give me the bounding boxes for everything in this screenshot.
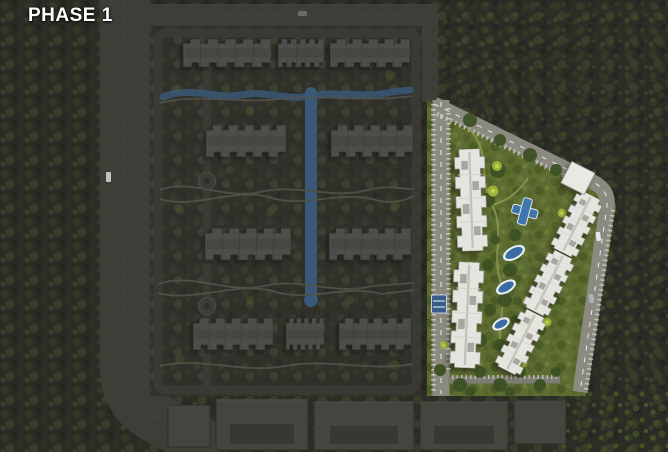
masterplan-render: PHASE 1	[0, 0, 668, 452]
building-cluster	[286, 318, 324, 350]
building-cluster	[193, 318, 273, 350]
building-cluster	[339, 318, 411, 350]
car-on-boulevard	[106, 172, 111, 182]
building-cluster	[329, 228, 411, 260]
entrance-gate	[432, 295, 447, 313]
building-cluster	[330, 39, 410, 67]
white-building	[450, 261, 485, 368]
forest-bottomright	[556, 388, 668, 452]
dimmed-compound	[150, 26, 422, 396]
building-cluster	[278, 39, 324, 67]
commercial-strip-dimmed	[168, 400, 566, 450]
car-on-north-road	[298, 11, 307, 16]
building-cluster	[331, 125, 413, 157]
aerial-scene	[0, 0, 668, 452]
building-cluster	[206, 125, 286, 157]
building-cluster	[183, 39, 271, 67]
white-building	[454, 149, 488, 252]
building-cluster	[205, 228, 291, 260]
phase-label: PHASE 1	[28, 4, 113, 28]
